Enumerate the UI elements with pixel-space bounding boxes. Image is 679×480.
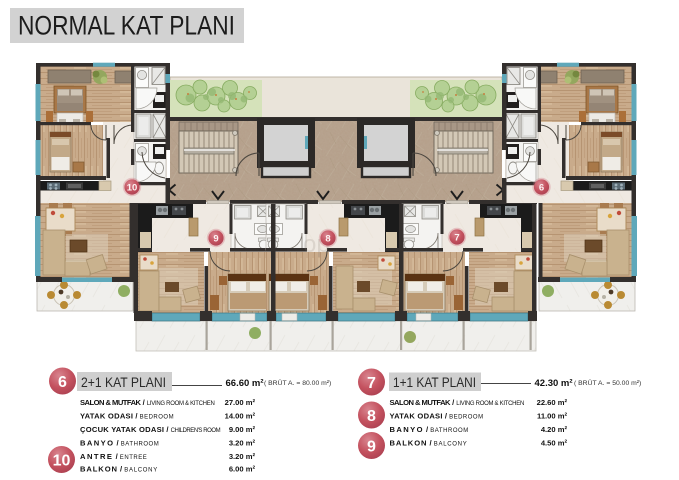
svg-text:( BRÜT A. = 80.00 m²): ( BRÜT A. = 80.00 m²) [264, 379, 331, 387]
svg-text:3.20 m²: 3.20 m² [229, 439, 256, 448]
svg-text:SALON & MUTFAK / LIVING ROOM &: SALON & MUTFAK / LIVING ROOM & KITCHEN [80, 398, 215, 407]
svg-text:4.20 m²: 4.20 m² [541, 425, 568, 434]
svg-text:BANYO / BATHROOM: BANYO / BATHROOM [390, 425, 469, 434]
svg-text:BALKON / BALCONY: BALKON / BALCONY [80, 465, 157, 474]
svg-text:YATAK ODASI / BEDROOM: YATAK ODASI / BEDROOM [80, 412, 174, 421]
svg-text:10: 10 [53, 453, 71, 470]
svg-text:8: 8 [367, 408, 376, 425]
svg-text:ANTRE / ENTREE: ANTRE / ENTREE [80, 452, 147, 461]
svg-text:9: 9 [367, 439, 376, 456]
svg-text:6.00 m²: 6.00 m² [229, 465, 256, 474]
svg-text:1+1 KAT PLANI: 1+1 KAT PLANI [393, 374, 476, 390]
svg-text:42.30 m²: 42.30 m² [535, 378, 573, 389]
svg-text:10: 10 [127, 183, 138, 194]
svg-text:ÇOCUK YATAK ODASI / CHILDREN'S: ÇOCUK YATAK ODASI / CHILDREN'S ROOM [80, 425, 221, 434]
svg-text:6: 6 [58, 374, 67, 391]
svg-text:4.50 m²: 4.50 m² [541, 439, 568, 448]
svg-text:14.00 m²: 14.00 m² [225, 412, 256, 421]
svg-text:NORMAL KAT PLANI: NORMAL KAT PLANI [18, 11, 235, 41]
svg-text:9.00 m²: 9.00 m² [229, 425, 256, 434]
svg-text:11.00 m²: 11.00 m² [537, 412, 567, 421]
svg-text:22.60 m²: 22.60 m² [537, 398, 568, 407]
svg-text:BANYO / BATHROOM: BANYO / BATHROOM [80, 439, 159, 448]
svg-text:9: 9 [213, 234, 218, 245]
svg-text:66.60 m²: 66.60 m² [226, 378, 264, 389]
svg-text:( BRÜT A. = 50.00 m²): ( BRÜT A. = 50.00 m²) [574, 379, 641, 387]
svg-text:YATAK ODASI / BEDROOM: YATAK ODASI / BEDROOM [390, 412, 484, 421]
svg-text:6: 6 [539, 183, 544, 194]
svg-text:BALKON / BALCONY: BALKON / BALCONY [390, 439, 467, 448]
svg-text:SALON & MUTFAK / LIVING ROOM &: SALON & MUTFAK / LIVING ROOM & KITCHEN [390, 398, 525, 407]
svg-text:2+1 KAT PLANI: 2+1 KAT PLANI [81, 374, 166, 390]
svg-text:27.00 m²: 27.00 m² [225, 398, 256, 407]
svg-text:7: 7 [454, 233, 459, 244]
svg-text:7: 7 [367, 375, 376, 392]
svg-text:8: 8 [325, 234, 330, 245]
svg-text:3.20 m²: 3.20 m² [229, 452, 256, 461]
